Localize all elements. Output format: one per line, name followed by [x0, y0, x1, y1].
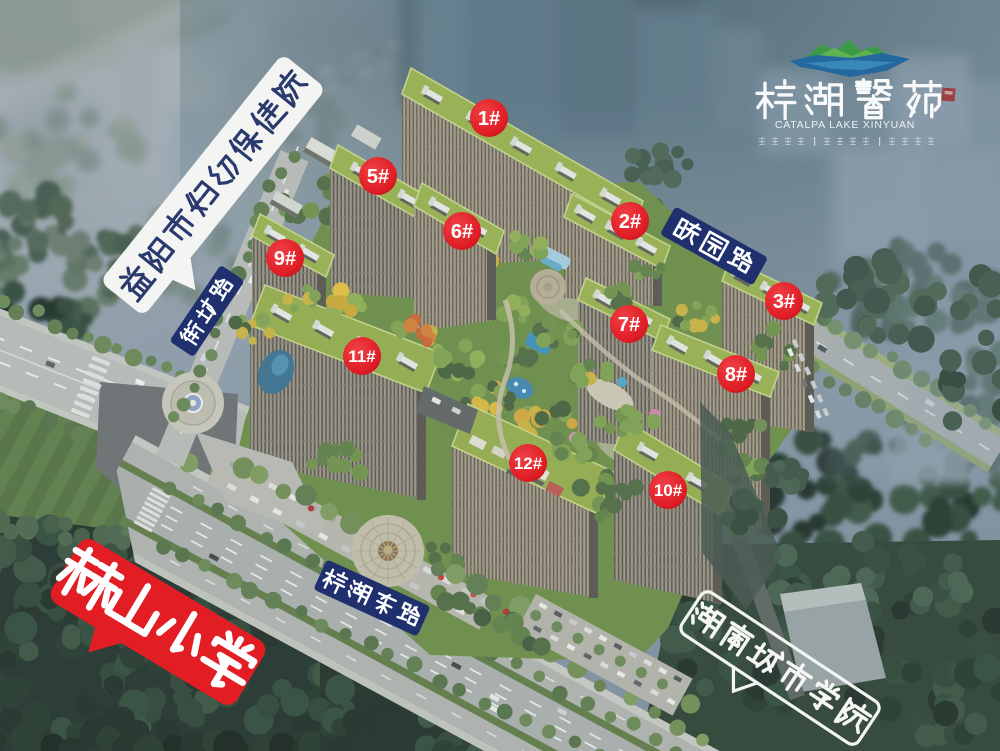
- svg-text:1#: 1#: [478, 108, 500, 130]
- svg-text:11#: 11#: [348, 347, 376, 366]
- svg-text:6#: 6#: [451, 221, 473, 243]
- svg-text:12#: 12#: [514, 454, 543, 473]
- svg-text:3#: 3#: [773, 291, 795, 313]
- svg-text:7#: 7#: [618, 314, 640, 336]
- svg-text:2#: 2#: [619, 211, 641, 233]
- svg-text:9#: 9#: [274, 248, 296, 270]
- svg-text:10#: 10#: [654, 481, 683, 500]
- svg-text:5#: 5#: [367, 166, 389, 188]
- svg-text:CATALPA LAKE XINYUAN: CATALPA LAKE XINYUAN: [775, 119, 915, 131]
- svg-text:8#: 8#: [725, 364, 747, 386]
